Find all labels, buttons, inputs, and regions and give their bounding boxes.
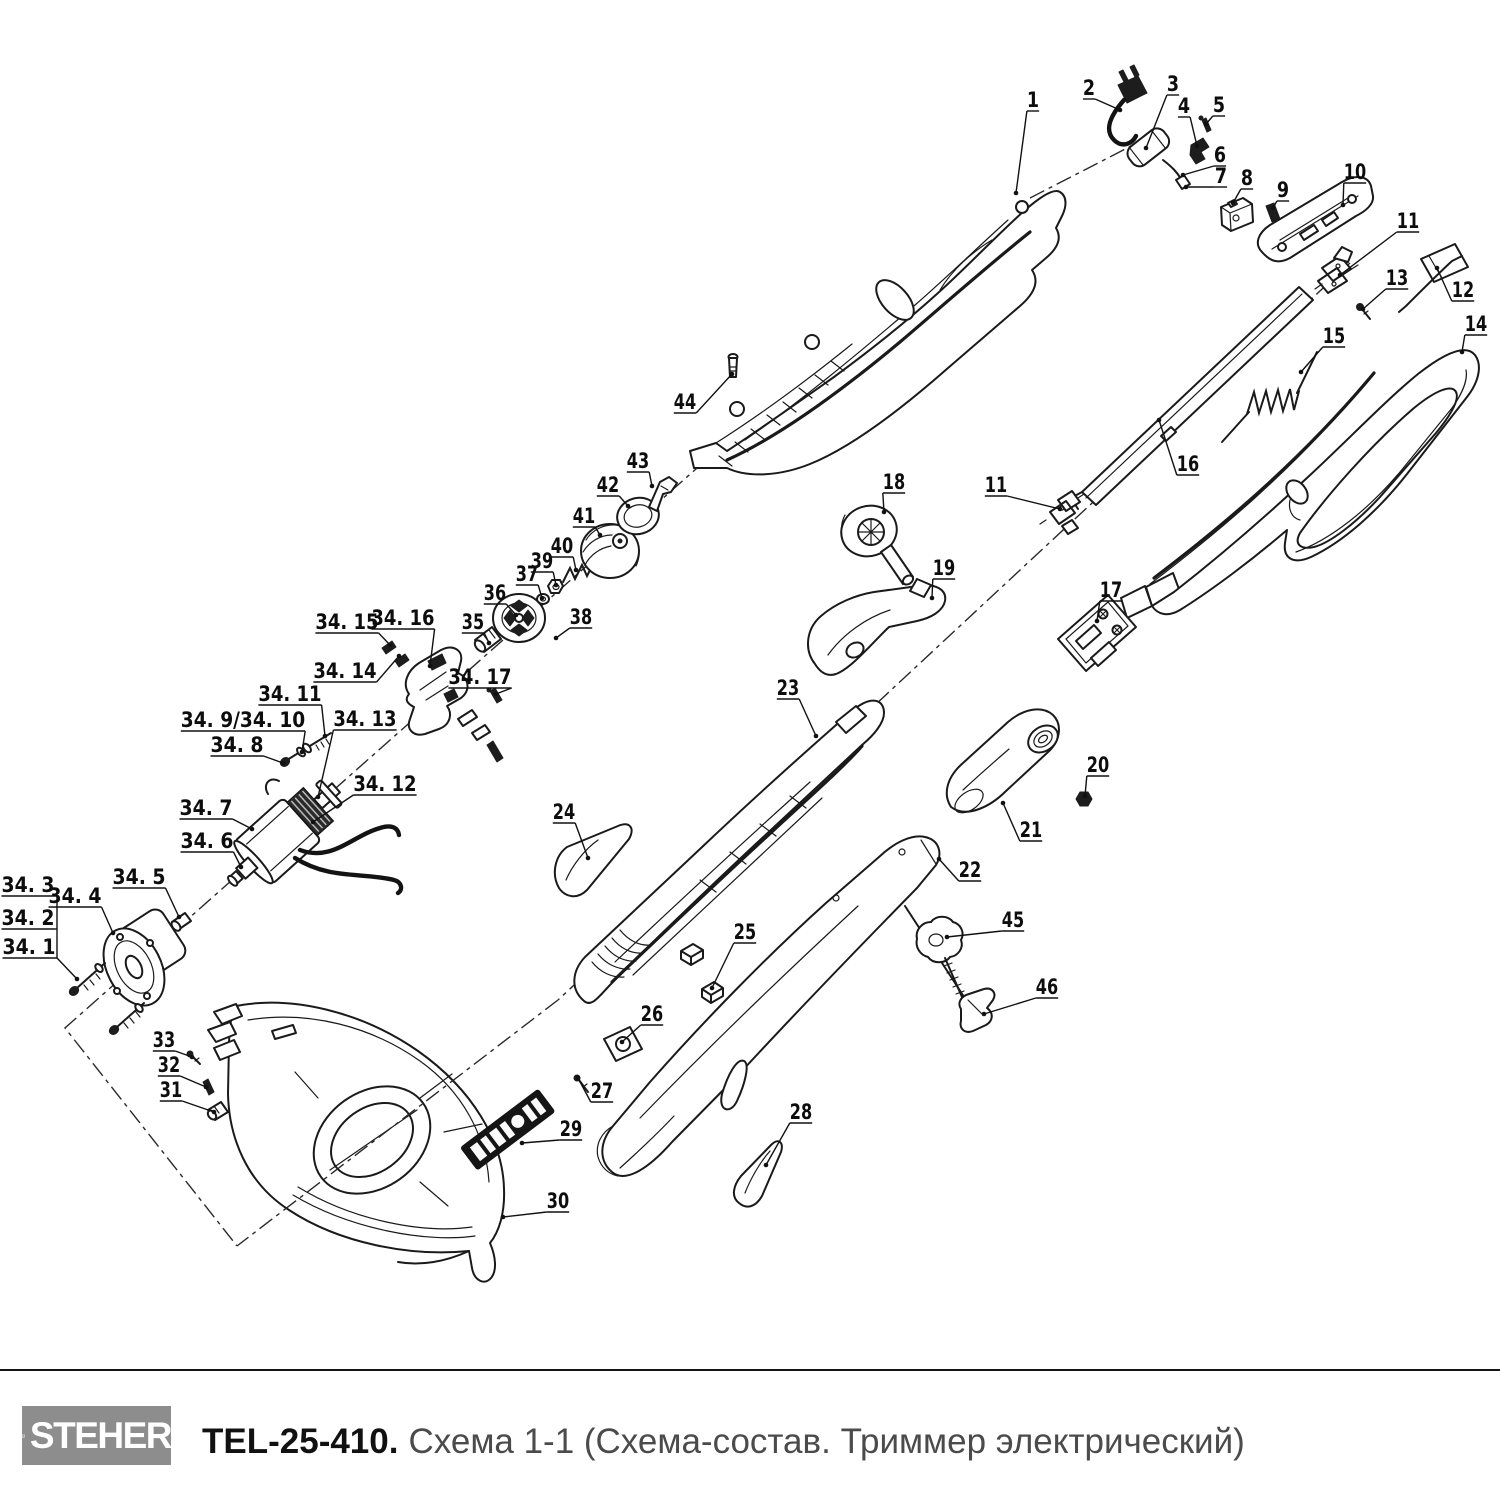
part-label-41: 41 xyxy=(573,504,603,537)
part-label-34-5: 34. 5 xyxy=(113,865,182,919)
svg-text:14: 14 xyxy=(1465,312,1487,336)
steher-logo: STEHER xyxy=(22,1406,171,1465)
part-label-42: 42 xyxy=(597,473,631,508)
svg-text:21: 21 xyxy=(1020,818,1042,842)
svg-text:30: 30 xyxy=(547,1189,569,1213)
brand-text: STEHER xyxy=(30,1417,171,1454)
part-label-23: 23 xyxy=(777,676,819,738)
svg-text:27: 27 xyxy=(591,1079,613,1103)
part-label-18: 18 xyxy=(882,470,906,514)
part-label-27: 27 xyxy=(576,1076,614,1103)
part-label-38: 38 xyxy=(554,605,593,640)
svg-text:2: 2 xyxy=(1083,76,1095,100)
part-label-30: 30 xyxy=(501,1189,570,1219)
part-bolt-46 xyxy=(959,989,994,1032)
svg-text:45: 45 xyxy=(1002,908,1024,932)
part-label-21: 21 xyxy=(1001,801,1043,842)
svg-text:11: 11 xyxy=(1397,209,1419,233)
svg-text:28: 28 xyxy=(790,1100,812,1124)
part-label-34-1: 34. 1 xyxy=(3,935,58,959)
part-arm-21 xyxy=(947,709,1063,817)
part-upper-housing-1 xyxy=(690,191,1066,474)
part-label-40: 40 xyxy=(551,534,579,572)
svg-text:22: 22 xyxy=(959,858,981,882)
svg-text:34. 6: 34. 6 xyxy=(181,829,234,853)
svg-text:34. 1: 34. 1 xyxy=(3,935,56,959)
part-label-15: 15 xyxy=(1299,324,1346,374)
svg-text:5: 5 xyxy=(1213,93,1225,117)
doc-subtitle: Схема 1-1 (Схема-состав. Триммер электри… xyxy=(408,1422,1244,1461)
part-label-34-8: 34. 8 xyxy=(211,733,286,765)
part-label-22: 22 xyxy=(937,857,982,882)
steher-logo-mark xyxy=(22,1413,25,1459)
part-bracket-19 xyxy=(808,579,945,675)
svg-text:25: 25 xyxy=(734,920,756,944)
svg-text:43: 43 xyxy=(627,449,649,473)
svg-text:20: 20 xyxy=(1087,753,1109,777)
exploded-diagram: 1234567891011121314151617181119202122232… xyxy=(0,0,1500,1500)
svg-text:24: 24 xyxy=(553,800,575,824)
svg-text:34. 5: 34. 5 xyxy=(113,865,166,889)
part-flange-group-34 xyxy=(68,906,191,1037)
svg-text:12: 12 xyxy=(1452,278,1474,302)
part-switch-8 xyxy=(1221,198,1253,231)
svg-text:29: 29 xyxy=(560,1117,582,1141)
svg-text:33: 33 xyxy=(153,1028,175,1052)
svg-text:34. 2: 34. 2 xyxy=(2,906,55,930)
page: 1234567891011121314151617181119202122232… xyxy=(0,0,1500,1500)
part-label-34-6: 34. 6 xyxy=(181,829,244,869)
svg-text:35: 35 xyxy=(462,610,484,634)
svg-text:26: 26 xyxy=(641,1002,663,1026)
part-label-28: 28 xyxy=(764,1100,813,1167)
part-knob-45 xyxy=(905,906,968,1003)
part-label-34-14: 34. 14 xyxy=(313,654,401,683)
svg-text:41: 41 xyxy=(573,504,595,528)
svg-text:34. 11: 34. 11 xyxy=(258,682,321,706)
part-screwset-34-8-11 xyxy=(279,733,331,768)
part-clamp-11-lower xyxy=(1040,491,1084,534)
part-label-14: 14 xyxy=(1460,312,1488,354)
svg-text:34. 7: 34. 7 xyxy=(180,796,233,820)
svg-text:10: 10 xyxy=(1344,160,1366,184)
svg-text:13: 13 xyxy=(1386,266,1408,290)
svg-text:19: 19 xyxy=(933,556,955,580)
part-clip-4 xyxy=(1190,138,1209,164)
part-lower-housing-14 xyxy=(1121,350,1479,618)
part-guard-30 xyxy=(208,1003,504,1282)
part-pins-34-14-15 xyxy=(382,641,409,667)
svg-text:7: 7 xyxy=(1215,164,1227,188)
svg-text:18: 18 xyxy=(883,470,905,494)
svg-text:9: 9 xyxy=(1277,178,1289,202)
part-sleeve-31 xyxy=(206,1102,228,1121)
svg-text:34. 9/34. 10: 34. 9/34. 10 xyxy=(181,708,305,732)
svg-text:8: 8 xyxy=(1241,166,1253,190)
svg-text:34. 14: 34. 14 xyxy=(313,659,376,683)
svg-text:38: 38 xyxy=(570,605,592,629)
svg-text:46: 46 xyxy=(1036,975,1058,999)
svg-text:31: 31 xyxy=(160,1078,182,1102)
part-label-44: 44 xyxy=(674,372,735,414)
svg-text:34. 3: 34. 3 xyxy=(2,873,55,897)
part-label-34-7: 34. 7 xyxy=(180,796,255,831)
svg-text:40: 40 xyxy=(551,534,573,558)
footer-divider xyxy=(0,1369,1500,1371)
part-clamp-11-upper xyxy=(1315,247,1358,293)
part-label-11: 11 xyxy=(985,473,1062,511)
svg-text:11: 11 xyxy=(985,473,1007,497)
svg-text:3: 3 xyxy=(1167,72,1179,96)
part-cubes-25 xyxy=(681,944,723,1003)
part-label-4: 4 xyxy=(1178,94,1199,148)
svg-text:23: 23 xyxy=(777,676,799,700)
svg-text:34. 15: 34. 15 xyxy=(315,610,378,634)
svg-text:34. 17: 34. 17 xyxy=(448,665,511,689)
doc-model: TEL-25-410. xyxy=(202,1422,398,1461)
part-label-43: 43 xyxy=(627,449,655,488)
svg-text:15: 15 xyxy=(1323,324,1345,348)
svg-text:34. 16: 34. 16 xyxy=(371,606,434,630)
doc-title: TEL-25-410.Схема 1-1 (Схема-состав. Трим… xyxy=(202,1421,1245,1463)
part-knob-18 xyxy=(835,499,915,587)
part-power-cord-2-3 xyxy=(1109,65,1211,189)
svg-text:4: 4 xyxy=(1178,94,1190,118)
part-label-34-4: 34. 4 xyxy=(49,884,116,935)
svg-text:32: 32 xyxy=(158,1053,180,1077)
part-label-34-2: 34. 2 xyxy=(2,906,58,930)
svg-text:42: 42 xyxy=(597,473,619,497)
part-label-1: 1 xyxy=(1014,88,1039,195)
svg-text:44: 44 xyxy=(674,390,696,414)
part-label-13: 13 xyxy=(1361,266,1409,311)
svg-text:1: 1 xyxy=(1027,88,1039,112)
part-label-26: 26 xyxy=(620,1002,664,1044)
svg-text:36: 36 xyxy=(484,581,506,605)
svg-text:17: 17 xyxy=(1100,578,1122,602)
svg-text:34. 13: 34. 13 xyxy=(333,707,396,731)
svg-text:34. 8: 34. 8 xyxy=(211,733,264,757)
part-clip-43 xyxy=(649,477,677,511)
part-sticker-24 xyxy=(555,824,632,896)
svg-text:16: 16 xyxy=(1177,452,1199,476)
svg-text:34. 12: 34. 12 xyxy=(353,772,416,796)
